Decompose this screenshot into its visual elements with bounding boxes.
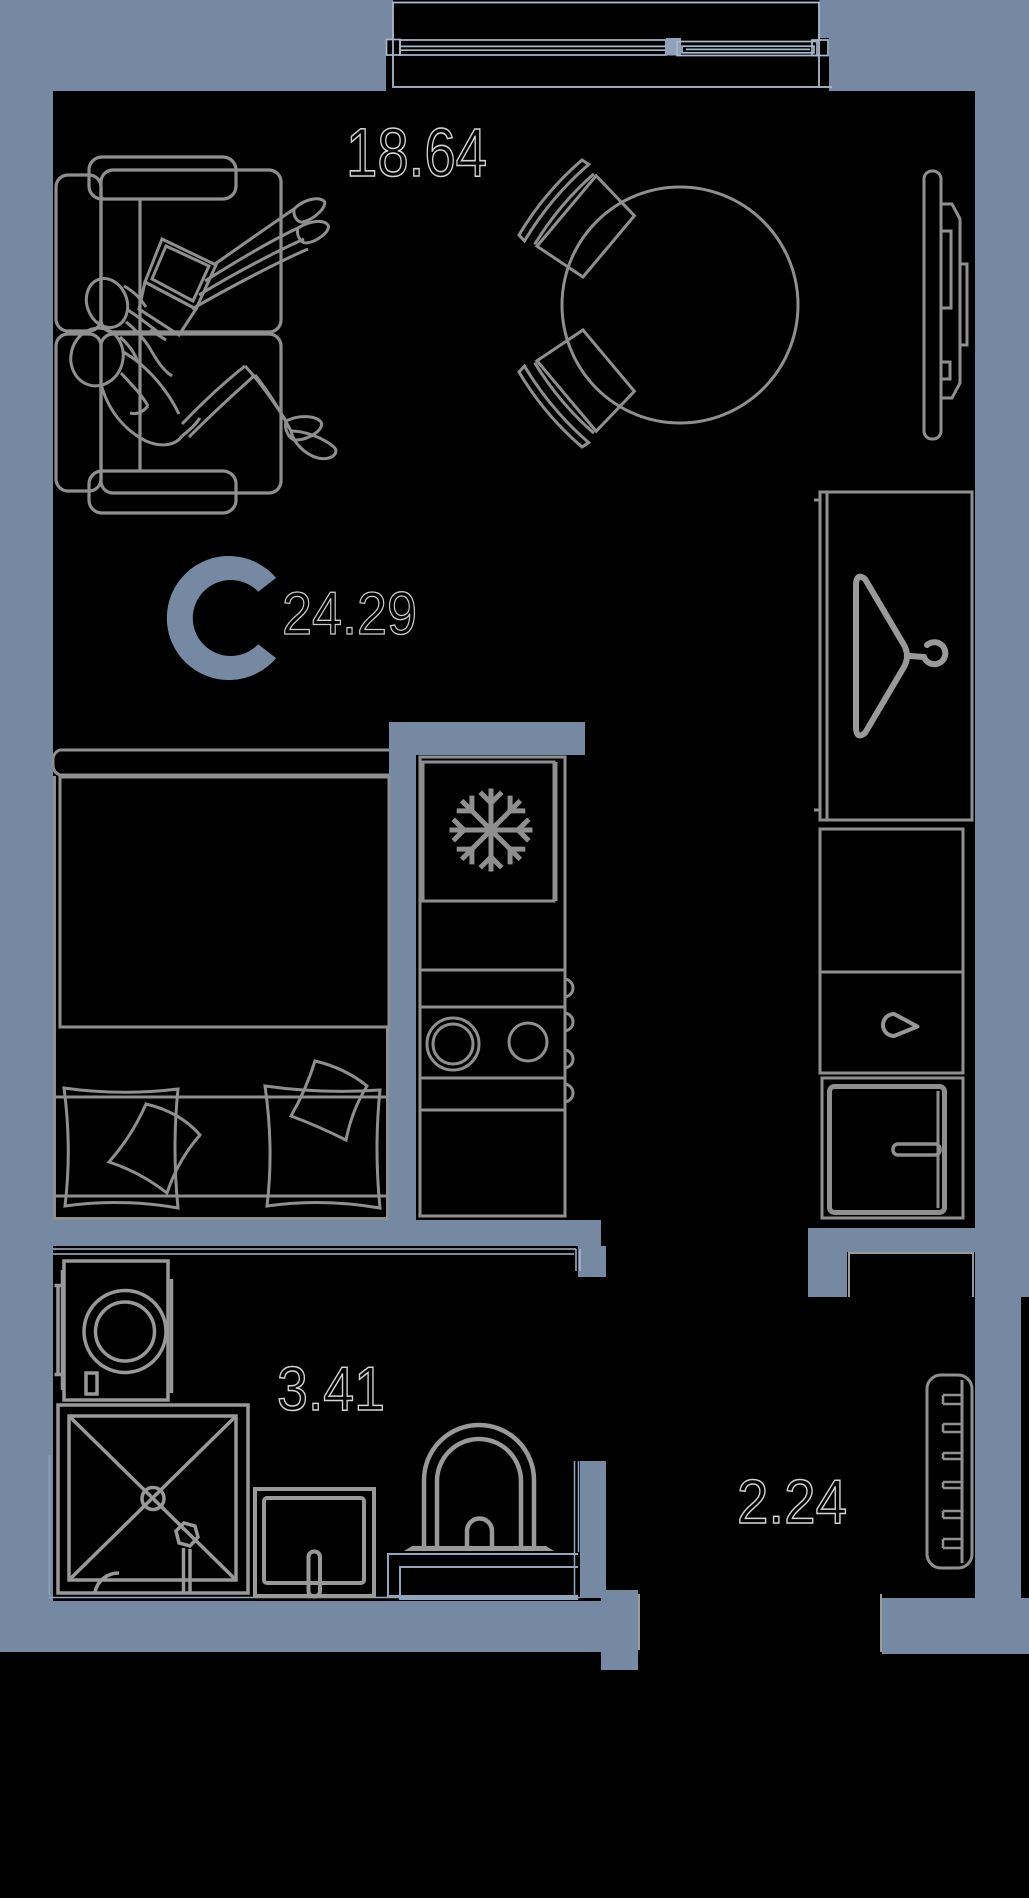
svg-text:2.24: 2.24 <box>737 1468 847 1537</box>
svg-text:24.29: 24.29 <box>282 580 417 647</box>
svg-text:18.64: 18.64 <box>346 114 487 191</box>
svg-text:3.41: 3.41 <box>277 1355 385 1424</box>
